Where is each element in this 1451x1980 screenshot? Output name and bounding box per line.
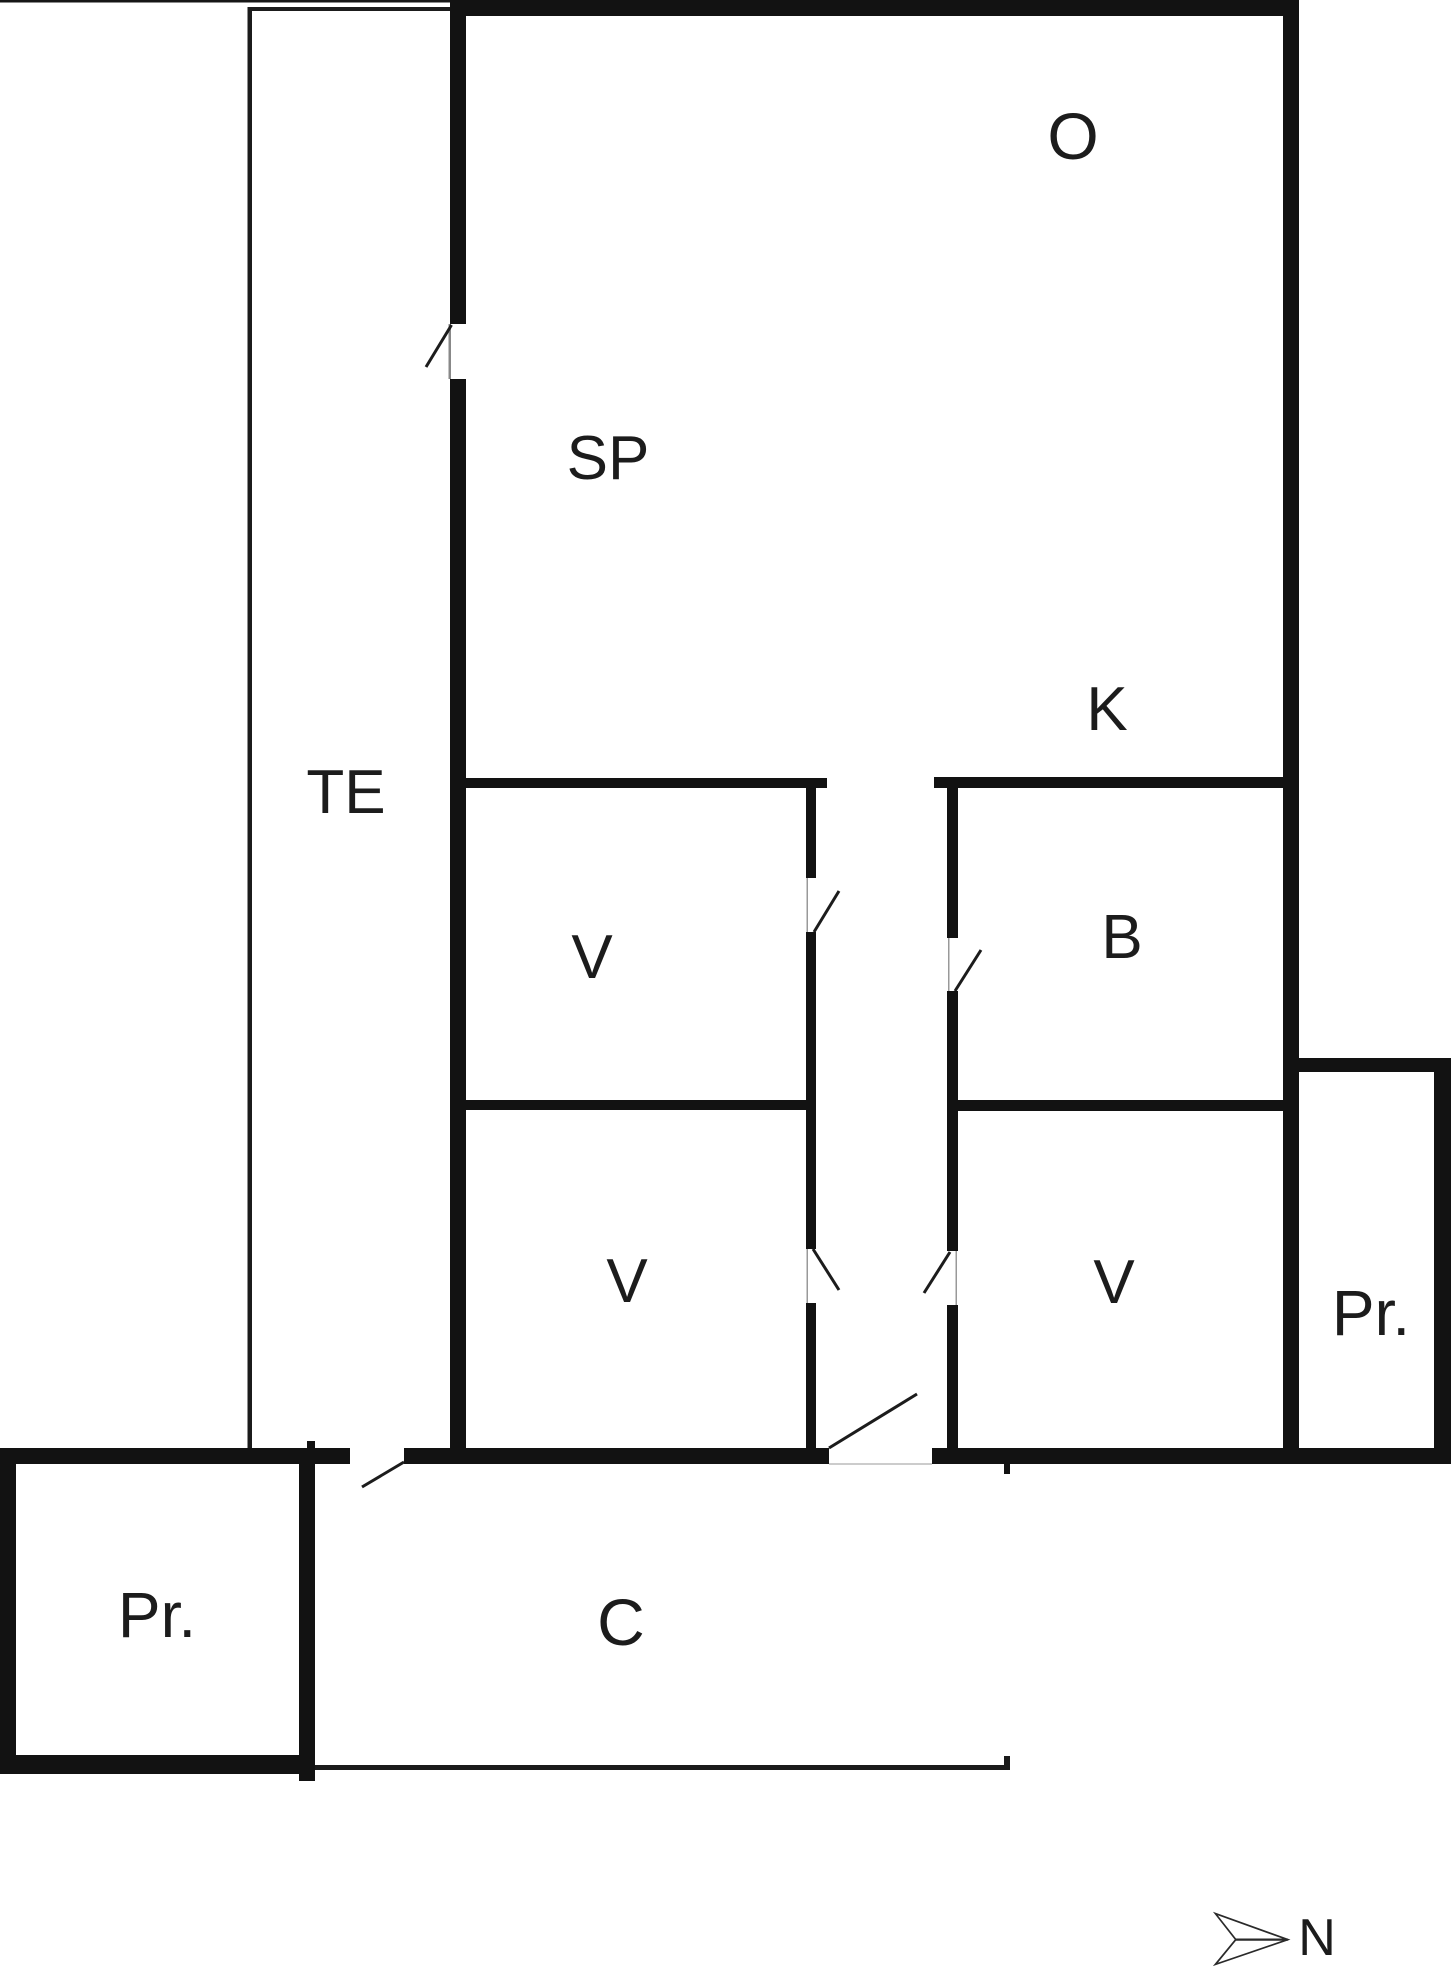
svg-text:SP: SP	[567, 424, 650, 493]
svg-text:K: K	[1086, 675, 1127, 744]
svg-text:Pr.: Pr.	[1332, 1277, 1410, 1349]
svg-text:V: V	[571, 923, 613, 992]
svg-text:V: V	[1093, 1248, 1135, 1317]
svg-text:TE: TE	[306, 758, 385, 827]
svg-text:B: B	[1101, 903, 1142, 972]
svg-text:C: C	[597, 1585, 645, 1659]
svg-text:Pr.: Pr.	[118, 1579, 196, 1651]
svg-text:N: N	[1298, 1909, 1336, 1967]
svg-text:O: O	[1047, 99, 1098, 173]
svg-text:V: V	[606, 1247, 648, 1316]
